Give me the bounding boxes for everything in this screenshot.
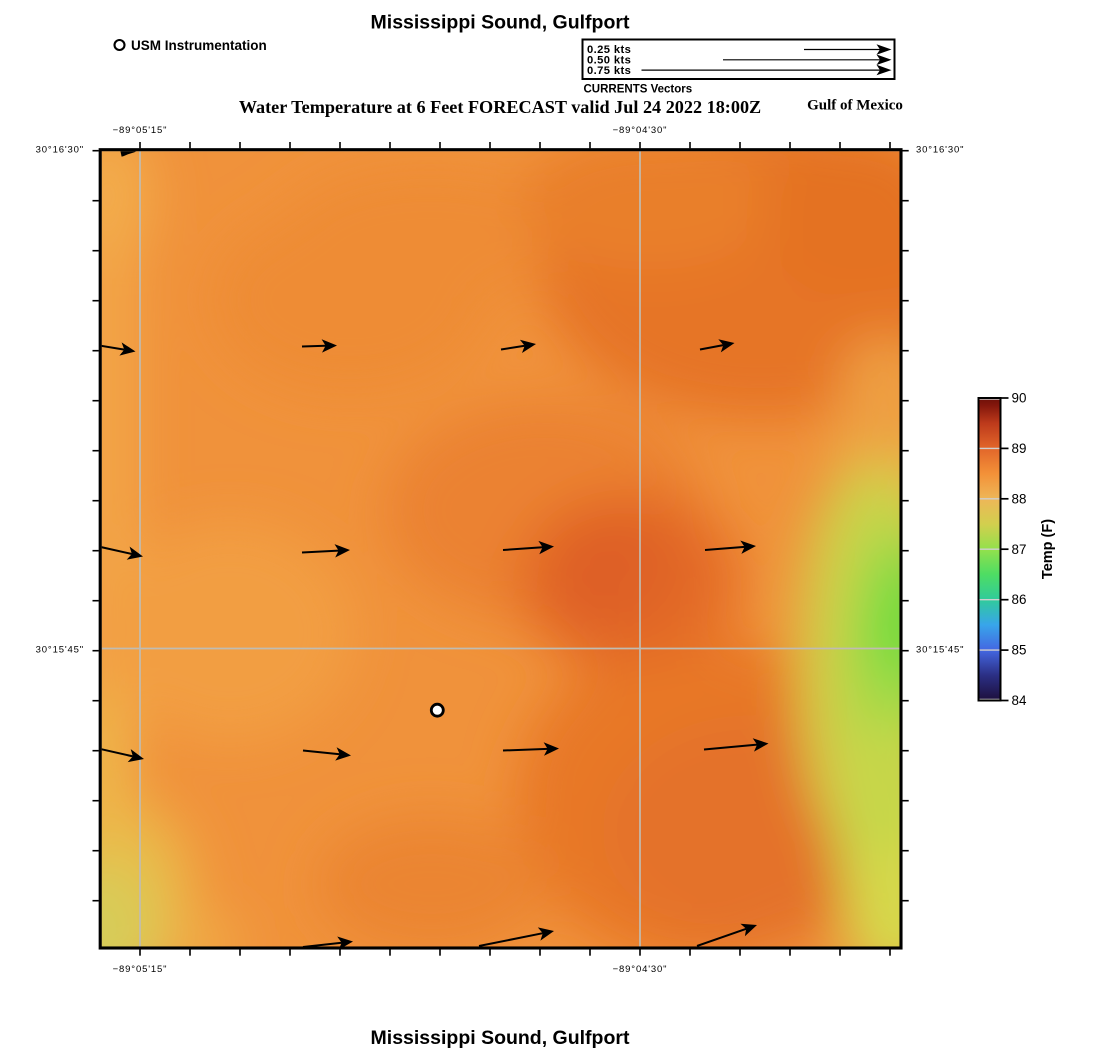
svg-text:−89°05'15": −89°05'15" bbox=[113, 125, 168, 136]
svg-text:30°16'30": 30°16'30" bbox=[916, 145, 964, 156]
svg-text:90: 90 bbox=[1012, 391, 1027, 406]
svg-text:USM Instrumentation: USM Instrumentation bbox=[131, 38, 267, 53]
svg-text:Mississippi Sound, Gulfport: Mississippi Sound, Gulfport bbox=[371, 12, 630, 34]
svg-text:84: 84 bbox=[1012, 693, 1027, 708]
svg-text:−89°04'30": −89°04'30" bbox=[613, 125, 668, 136]
svg-text:30°15'45": 30°15'45" bbox=[36, 644, 84, 655]
svg-text:85: 85 bbox=[1012, 643, 1027, 658]
svg-text:87: 87 bbox=[1012, 542, 1027, 557]
svg-text:−89°04'30": −89°04'30" bbox=[613, 964, 668, 975]
svg-text:0.75 kts: 0.75 kts bbox=[587, 65, 631, 77]
svg-text:Mississippi Sound, Gulfport: Mississippi Sound, Gulfport bbox=[371, 1027, 630, 1049]
svg-text:30°16'30": 30°16'30" bbox=[36, 145, 84, 156]
svg-text:30°15'45": 30°15'45" bbox=[916, 644, 964, 655]
svg-text:88: 88 bbox=[1012, 491, 1027, 506]
svg-text:Temp (F): Temp (F) bbox=[1040, 519, 1056, 579]
svg-text:Water Temperature at 6 Feet FO: Water Temperature at 6 Feet FORECAST val… bbox=[239, 97, 761, 117]
svg-text:89: 89 bbox=[1012, 441, 1027, 456]
svg-text:86: 86 bbox=[1012, 592, 1027, 607]
svg-text:CURRENTS Vectors: CURRENTS Vectors bbox=[584, 84, 693, 96]
svg-text:Gulf of Mexico: Gulf of Mexico bbox=[807, 98, 903, 114]
svg-text:−89°05'15": −89°05'15" bbox=[113, 964, 168, 975]
